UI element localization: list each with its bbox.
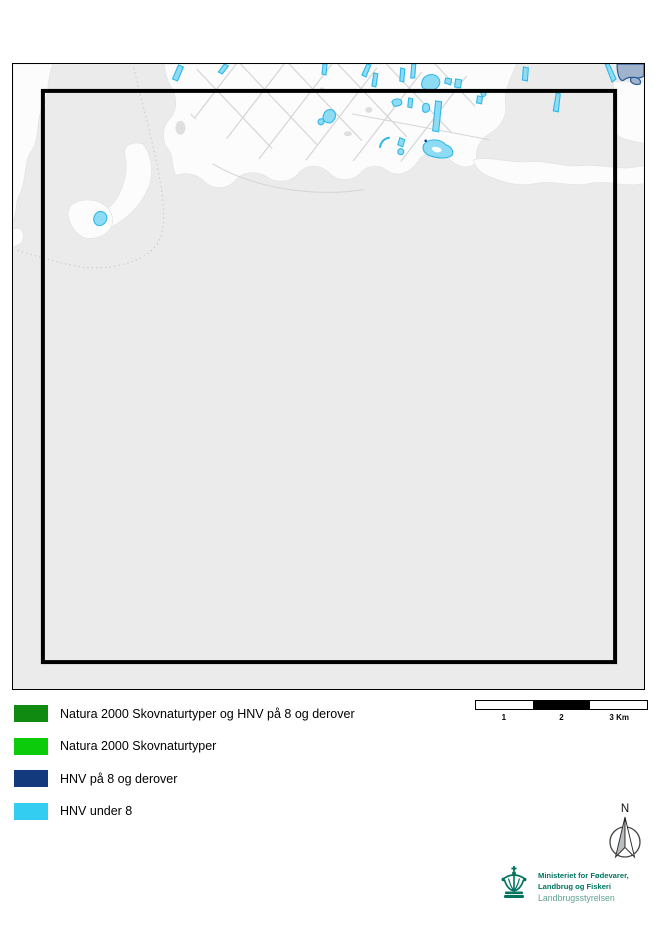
scale-segment (476, 701, 533, 709)
logo-text: Ministeriet for Fødevarer, Landbrug og F… (538, 866, 629, 904)
legend-swatch-natura (14, 738, 48, 755)
north-label: N (601, 803, 649, 815)
north-arrow: N (601, 803, 649, 866)
crown-icon (500, 866, 528, 898)
scale-label: 1 (475, 713, 533, 722)
legend-row: Natura 2000 Skovnaturtyper og HNV på 8 o… (14, 705, 355, 722)
compass-icon (601, 815, 649, 861)
legend-swatch-hnv-under8 (14, 803, 48, 820)
logo-agency: Landbrugsstyrelsen (538, 893, 629, 904)
scale-label: 2 (533, 713, 591, 722)
legend-row: HNV under 8 (14, 803, 355, 820)
ministry-logo: Ministeriet for Fødevarer, Landbrug og F… (500, 866, 629, 904)
legend-swatch-natura-hnv8 (14, 705, 48, 722)
scale-label: 3 Km (590, 713, 648, 722)
scale-segment (533, 701, 590, 709)
legend-row: Natura 2000 Skovnaturtyper (14, 738, 355, 755)
logo-org-line1: Ministeriet for Fødevarer, (538, 871, 629, 882)
legend-label: HNV under 8 (60, 804, 132, 818)
scale-bar-segments (475, 700, 648, 710)
map-svg (13, 64, 644, 689)
map-canvas (12, 63, 645, 690)
legend-swatch-hnv8 (14, 770, 48, 787)
scale-bar: 1 2 3 Km (475, 700, 648, 722)
scale-segment (590, 701, 647, 709)
legend-label: HNV på 8 og derover (60, 772, 177, 786)
scale-bar-labels: 1 2 3 Km (475, 713, 648, 722)
legend-label: Natura 2000 Skovnaturtyper og HNV på 8 o… (60, 707, 355, 721)
logo-org-line2: Landbrug og Fiskeri (538, 882, 629, 893)
map-layout-page: Natura 2000 Skovnaturtyper og HNV på 8 o… (0, 0, 660, 934)
legend-row: HNV på 8 og derover (14, 770, 355, 787)
legend: Natura 2000 Skovnaturtyper og HNV på 8 o… (14, 705, 355, 835)
legend-label: Natura 2000 Skovnaturtyper (60, 739, 216, 753)
